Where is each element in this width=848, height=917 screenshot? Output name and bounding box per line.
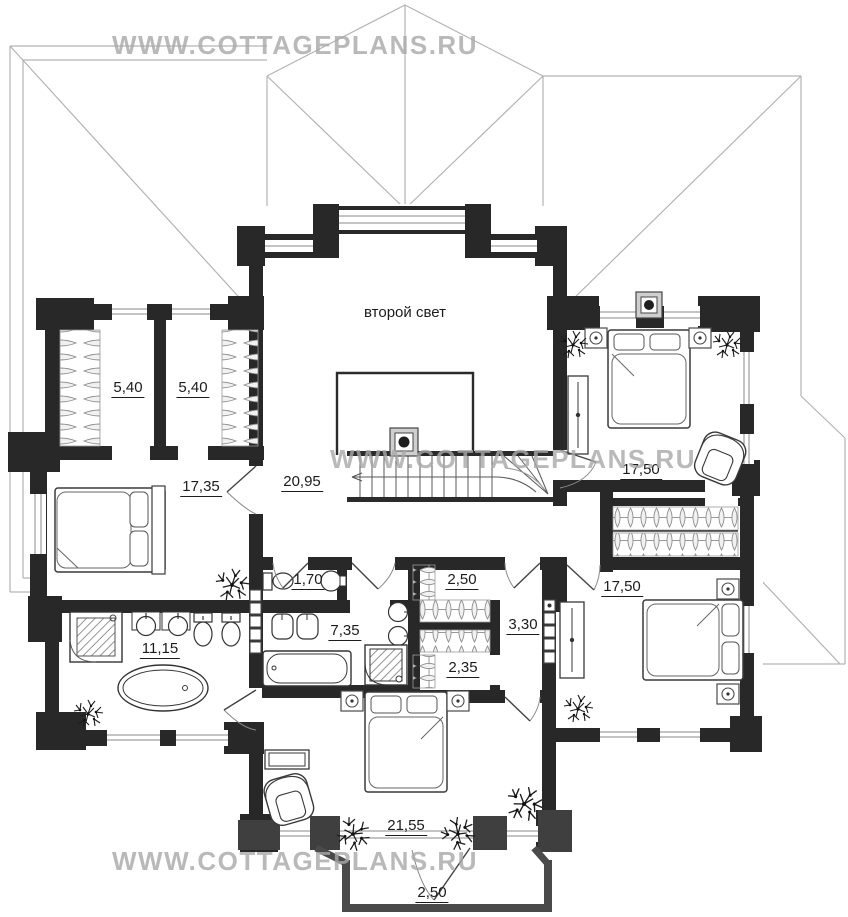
area-label-bathroom-center: 7,35	[328, 622, 361, 641]
area-label-hall: 20,95	[281, 473, 323, 492]
shower-icon	[70, 612, 122, 662]
area-label-closet-a: 5,40	[111, 379, 144, 398]
bathtub-icon	[118, 665, 208, 711]
area-label-balcony: 2,50	[415, 884, 448, 903]
floor-plan-page: WWW.COTTAGEPLANS.RU WWW.COTTAGEPLANS.RU …	[0, 0, 848, 917]
area-label-bedroom-left: 17,35	[180, 478, 222, 497]
watermark-bottom: WWW.COTTAGEPLANS.RU	[112, 846, 478, 877]
area-label-corridor: 3,30	[506, 616, 539, 635]
watermark-middle: WWW.COTTAGEPLANS.RU	[330, 444, 696, 475]
area-label-wc: 1,70	[291, 571, 324, 590]
watermark-top: WWW.COTTAGEPLANS.RU	[112, 30, 478, 61]
area-label-closet-top: 2,50	[445, 571, 478, 590]
area-label-bathroom-left: 11,15	[140, 640, 180, 659]
room-label-second-light: второй свет	[364, 304, 446, 321]
area-label-bedroom-bottom: 21,55	[385, 817, 427, 836]
area-label-closet-bottom: 2,35	[446, 659, 479, 678]
area-label-bedroom-bottom-right: 17,50	[601, 578, 643, 597]
area-label-closet-b: 5,40	[176, 379, 209, 398]
